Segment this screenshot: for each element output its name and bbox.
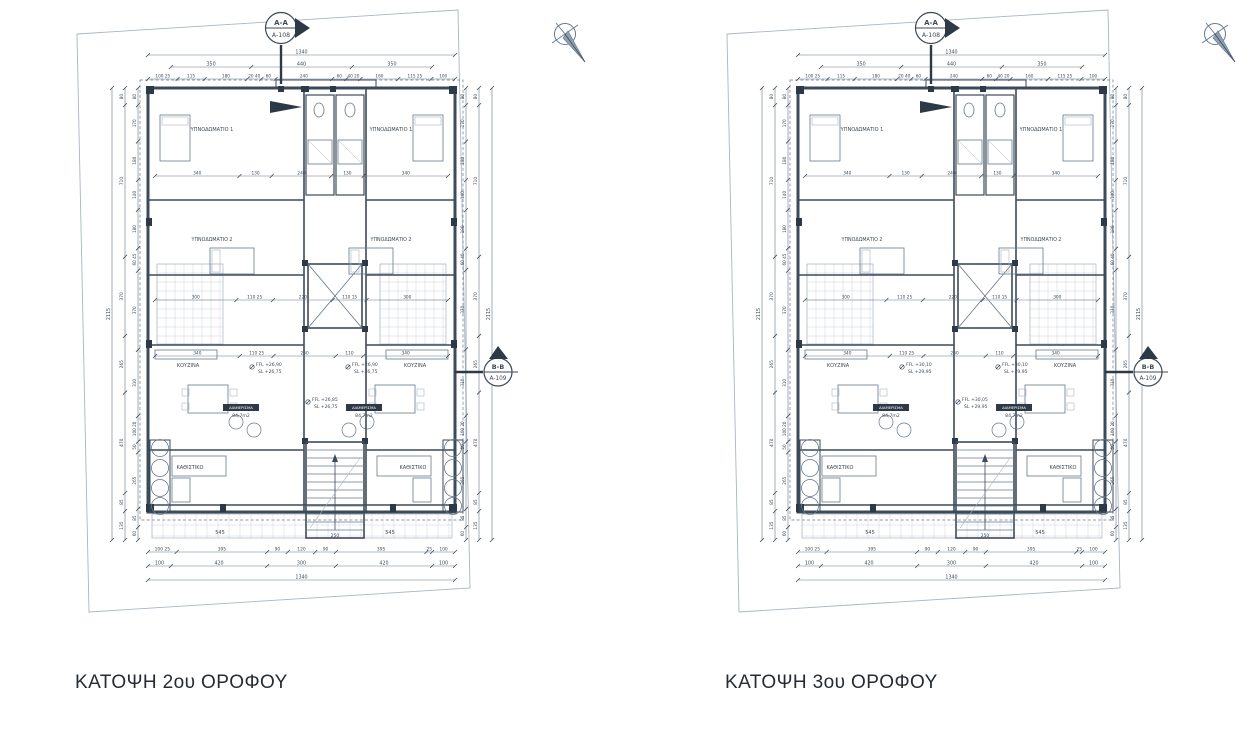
svg-text:265: 265 [460,476,465,484]
svg-text:ΚΟΥΖΙΝΑ: ΚΟΥΖΙΝΑ [827,363,850,369]
svg-text:60: 60 [987,73,993,78]
svg-text:110 25: 110 25 [249,350,264,356]
svg-text:350: 350 [856,61,865,67]
svg-text:370: 370 [769,292,775,301]
svg-text:2115: 2115 [106,308,112,320]
svg-text:370: 370 [132,306,137,314]
svg-text:80: 80 [1110,94,1115,100]
svg-text:250: 250 [301,350,309,356]
north-arrow-icon [552,23,585,62]
svg-text:135: 135 [769,521,775,530]
svg-text:ΥΠΝΟΔΩΜΑΤΙΟ 1: ΥΠΝΟΔΩΜΑΤΙΟ 1 [840,127,884,133]
svg-text:ΔΙΑΜΕΡΙΣΜΑ: ΔΙΑΜΕΡΙΣΜΑ [879,405,903,410]
svg-text:FFL +30,10: FFL +30,10 [906,362,932,368]
svg-text:84,7m2: 84,7m2 [355,413,373,419]
svg-text:300: 300 [947,560,956,566]
svg-text:FFL +26,90: FFL +26,90 [352,362,378,368]
svg-text:240: 240 [297,170,305,176]
svg-text:SL +29,95: SL +29,95 [908,369,932,375]
svg-text:100 20: 100 20 [132,421,137,436]
svg-text:470: 470 [1123,438,1129,447]
apartment-tags: ΔΙΑΜΕΡΙΣΜΑ84,7m2ΔΙΑΜΕΡΙΣΜΑ84,7m2 [223,404,382,419]
svg-text:370: 370 [119,292,125,301]
svg-text:350: 350 [1037,61,1046,67]
svg-text:340: 340 [193,350,201,356]
svg-text:85: 85 [132,515,137,521]
svg-text:FFL +30,05: FFL +30,05 [962,397,988,403]
svg-text:100: 100 [805,560,814,566]
svg-text:A-A: A-A [924,19,938,27]
svg-text:420: 420 [864,560,873,566]
balcony-grid-hatch [802,514,1102,538]
svg-text:100 25: 100 25 [155,73,170,78]
svg-text:FFL +30,10: FFL +30,10 [1002,362,1028,368]
svg-text:90: 90 [323,546,329,552]
svg-text:170: 170 [1110,119,1115,127]
svg-text:110 15: 110 15 [342,294,357,300]
svg-text:100 20: 100 20 [460,421,465,436]
svg-text:85: 85 [460,515,465,521]
svg-text:130: 130 [343,170,351,176]
svg-text:710: 710 [119,177,125,186]
svg-text:340: 340 [193,170,201,176]
svg-text:240: 240 [950,73,958,78]
svg-text:140: 140 [132,191,137,199]
svg-text:ΚΟΥΖΙΝΑ: ΚΟΥΖΙΝΑ [1054,363,1077,369]
svg-text:265: 265 [132,476,137,484]
svg-text:ΥΠΝΟΔΩΜΑΤΙΟ 2: ΥΠΝΟΔΩΜΑΤΙΟ 2 [841,237,883,243]
svg-text:300: 300 [842,294,850,300]
svg-text:25: 25 [426,546,432,552]
floor-plan-3rd-floor-drawing: 545545250ΥΠΝΟΔΩΜΑΤΙΟ 1ΥΠΝΟΔΩΜΑΤΙΟ 1ΥΠΝΟΔ… [710,0,1250,650]
svg-text:100 25: 100 25 [805,73,820,78]
svg-text:265: 265 [119,360,125,369]
svg-text:340: 340 [843,170,851,176]
svg-text:340: 340 [402,350,410,356]
svg-text:180: 180 [222,73,230,78]
svg-text:60: 60 [782,531,787,537]
svg-text:60: 60 [266,73,272,78]
svg-text:300: 300 [1053,294,1061,300]
svg-text:140: 140 [782,191,787,199]
svg-text:100 25: 100 25 [805,546,821,552]
dimensions-bottom: 100 253959012090395251001004203004201001… [796,546,1107,582]
svg-text:265: 265 [1110,476,1115,484]
svg-text:80: 80 [119,94,125,100]
svg-text:545: 545 [1035,530,1045,536]
svg-text:80: 80 [473,94,479,100]
dimensions-top: 1340350440350100 2511518020 40602406040 … [796,49,1107,81]
svg-text:370: 370 [782,306,787,314]
svg-text:40 20: 40 20 [347,73,359,78]
svg-text:300: 300 [403,294,411,300]
svg-text:130: 130 [251,170,259,176]
svg-text:180: 180 [132,156,137,164]
svg-text:85: 85 [769,499,775,505]
svg-text:1340: 1340 [945,49,957,55]
section-cut-arrow [270,101,302,113]
svg-text:50: 50 [1110,444,1115,450]
plan-title-3rd-floor: ΚΑΤΟΨΗ 3ου ΟΡΟΦΟΥ [725,672,938,694]
level-annotations: FFL +30,10SL +29,95FFL +30,10SL +29,95FF… [900,362,1028,410]
svg-text:170: 170 [132,119,137,127]
svg-text:130: 130 [993,170,1001,176]
svg-text:ΚΟΥΖΙΝΑ: ΚΟΥΖΙΝΑ [177,363,200,369]
svg-text:440: 440 [297,61,306,67]
svg-text:100: 100 [1089,560,1098,566]
svg-text:265: 265 [782,476,787,484]
svg-text:110 25: 110 25 [899,350,914,356]
svg-text:395: 395 [868,546,877,552]
bathroom-fixtures [308,103,362,164]
svg-text:ΥΠΝΟΔΩΜΑΤΙΟ 1: ΥΠΝΟΔΩΜΑΤΙΟ 1 [369,127,413,133]
balcony-grid-hatch [1030,264,1096,344]
svg-text:180: 180 [1110,225,1115,233]
svg-text:350: 350 [206,61,215,67]
svg-text:340: 340 [402,170,410,176]
floor-plan-2nd-floor: 545545250ΥΠΝΟΔΩΜΑΤΙΟ 1ΥΠΝΟΔΩΜΑΤΙΟ 1ΥΠΝΟΔ… [60,0,620,650]
drawing-sheet: { "colors": { "line_dark": "#3d4a58", "l… [0,0,1250,753]
svg-text:2115: 2115 [486,308,492,320]
svg-text:310: 310 [782,379,787,387]
svg-text:60 45: 60 45 [132,253,137,265]
section-cut-arrow [920,101,952,113]
plan-title-2nd-floor: ΚΑΤΟΨΗ 2ου ΟΡΟΦΟΥ [75,672,288,694]
svg-text:B-B: B-B [492,363,505,371]
svg-text:FFL +26,90: FFL +26,90 [256,362,282,368]
svg-text:340: 340 [1052,350,1060,356]
svg-text:84,7m2: 84,7m2 [1005,413,1023,419]
dimensions-top: 1340350440350100 2511518020 40602406040 … [146,49,457,81]
svg-text:710: 710 [473,177,479,186]
balconies: 545545250 [152,264,452,539]
floor-plan-2nd-floor-drawing: 545545250ΥΠΝΟΔΩΜΑΤΙΟ 1ΥΠΝΟΔΩΜΑΤΙΟ 1ΥΠΝΟΔ… [60,0,620,650]
svg-text:545: 545 [215,530,225,536]
svg-text:420: 420 [1029,560,1038,566]
svg-text:170: 170 [782,119,787,127]
svg-text:110 25: 110 25 [247,294,262,300]
svg-text:SL +29,95: SL +29,95 [964,404,988,410]
svg-text:370: 370 [1110,305,1115,313]
svg-text:160: 160 [375,73,383,78]
svg-text:40 20: 40 20 [997,73,1009,78]
svg-text:ΚΑΘΙΣΤΙΚΟ: ΚΑΘΙΣΤΙΚΟ [176,465,203,471]
svg-text:FFL +26,85: FFL +26,85 [312,397,338,403]
svg-text:2115: 2115 [756,308,762,320]
dimensions-left: 8017018014018060 45370310100 20502658560… [756,86,790,542]
svg-text:100: 100 [439,546,448,552]
svg-text:ΚΟΥΖΙΝΑ: ΚΟΥΖΙΝΑ [404,363,427,369]
svg-text:60 45: 60 45 [782,253,787,265]
svg-text:265: 265 [1123,360,1129,369]
svg-text:90: 90 [925,546,931,552]
svg-text:85: 85 [119,499,125,505]
svg-text:115 25: 115 25 [1058,73,1073,78]
svg-text:60 40: 60 40 [460,253,465,265]
svg-text:310: 310 [460,378,465,386]
svg-text:120: 120 [297,546,306,552]
apartment-tags: ΔΙΑΜΕΡΙΣΜΑ84,7m2ΔΙΑΜΕΡΙΣΜΑ84,7m2 [873,404,1032,419]
svg-text:SL +29,95: SL +29,95 [1004,369,1028,375]
svg-text:A-108: A-108 [272,32,290,39]
svg-text:470: 470 [769,438,775,447]
svg-text:180: 180 [782,156,787,164]
svg-text:135: 135 [119,521,125,530]
level-annotations: FFL +26,90SL +26,75FFL +26,90SL +26,75FF… [250,362,378,410]
svg-text:395: 395 [1027,546,1036,552]
svg-text:110: 110 [345,350,353,356]
svg-text:SL +26,75: SL +26,75 [354,369,378,375]
svg-text:50: 50 [782,444,787,450]
svg-text:180: 180 [1110,157,1115,165]
svg-text:240: 240 [300,73,308,78]
svg-text:100: 100 [155,560,164,566]
svg-text:ΚΑΘΙΣΤΙΚΟ: ΚΑΘΙΣΤΙΚΟ [399,465,426,471]
staircase [956,442,1014,538]
svg-text:110: 110 [995,350,1003,356]
svg-text:100: 100 [439,560,448,566]
dimensions-right: 8017018014018060 40370310100 20502658560… [460,86,494,542]
svg-text:140: 140 [1110,191,1115,199]
svg-text:340: 340 [1052,170,1060,176]
svg-text:545: 545 [385,530,395,536]
svg-text:60: 60 [1110,531,1115,537]
svg-text:110 25: 110 25 [897,294,912,300]
svg-text:370: 370 [473,292,479,301]
svg-text:160: 160 [1025,73,1033,78]
svg-text:170: 170 [460,119,465,127]
svg-text:370: 370 [460,305,465,313]
north-arrow-icon [1202,23,1235,62]
svg-text:25: 25 [1076,546,1082,552]
svg-text:84,7m2: 84,7m2 [232,413,250,419]
svg-text:50: 50 [132,444,137,450]
svg-text:220: 220 [299,294,307,300]
svg-text:20 40: 20 40 [898,73,910,78]
svg-text:710: 710 [1123,177,1129,186]
svg-text:20 40: 20 40 [248,73,260,78]
svg-text:100: 100 [1089,73,1097,78]
dimensions-left: 8017018014018060 45370310100 20502658560… [106,86,140,542]
svg-text:1340: 1340 [295,49,307,55]
svg-text:115: 115 [837,73,845,78]
svg-text:85: 85 [1110,515,1115,521]
balcony-grid-hatch [380,264,446,344]
svg-text:135: 135 [1123,521,1129,530]
svg-text:80: 80 [132,94,137,100]
dimensions-right: 8017018014018060 40370310100 20502658560… [1110,86,1144,542]
bathroom-fixtures [958,103,1012,164]
svg-text:60: 60 [916,73,922,78]
svg-text:140: 140 [460,191,465,199]
svg-text:395: 395 [377,546,386,552]
svg-text:ΥΠΝΟΔΩΜΑΤΙΟ 1: ΥΠΝΟΔΩΜΑΤΙΟ 1 [1019,127,1063,133]
svg-text:115: 115 [187,73,195,78]
svg-text:SL +26,75: SL +26,75 [314,404,338,410]
svg-text:135: 135 [473,521,479,530]
svg-text:60: 60 [337,73,343,78]
dimensions-bottom: 100 253959012090395251001004203004201001… [146,546,457,582]
svg-text:60 40: 60 40 [1110,253,1115,265]
balcony-grid-hatch [157,264,223,344]
svg-text:710: 710 [769,177,775,186]
balcony-grid-hatch [807,264,873,344]
svg-text:90: 90 [973,546,979,552]
svg-text:265: 265 [769,360,775,369]
balcony-grid-hatch [152,514,452,538]
svg-text:84,7m2: 84,7m2 [882,413,900,419]
svg-text:180: 180 [132,225,137,233]
svg-text:ΚΑΘΙΣΤΙΚΟ: ΚΑΘΙΣΤΙΚΟ [826,465,853,471]
svg-text:ΥΠΝΟΔΩΜΑΤΙΟ 2: ΥΠΝΟΔΩΜΑΤΙΟ 2 [191,237,233,243]
svg-text:350: 350 [387,61,396,67]
svg-text:300: 300 [192,294,200,300]
svg-text:A-108: A-108 [922,32,940,39]
svg-text:115 25: 115 25 [408,73,423,78]
svg-text:ΥΠΝΟΔΩΜΑΤΙΟ 2: ΥΠΝΟΔΩΜΑΤΙΟ 2 [370,237,412,243]
svg-text:250: 250 [951,350,959,356]
svg-text:395: 395 [218,546,227,552]
svg-text:2115: 2115 [1136,308,1142,320]
svg-text:100 20: 100 20 [782,421,787,436]
svg-text:60: 60 [460,531,465,537]
svg-text:180: 180 [872,73,880,78]
svg-text:440: 440 [947,61,956,67]
svg-text:300: 300 [297,560,306,566]
svg-text:85: 85 [782,515,787,521]
svg-text:80: 80 [460,94,465,100]
svg-text:310: 310 [1110,378,1115,386]
svg-text:B-B: B-B [1142,363,1155,371]
svg-text:310: 310 [132,379,137,387]
svg-text:ΔΙΑΜΕΡΙΣΜΑ: ΔΙΑΜΕΡΙΣΜΑ [1002,405,1026,410]
svg-text:340: 340 [843,350,851,356]
balconies: 545545250 [802,264,1102,539]
svg-text:80: 80 [769,94,775,100]
svg-text:470: 470 [119,438,125,447]
svg-text:ΚΑΘΙΣΤΙΚΟ: ΚΑΘΙΣΤΙΚΟ [1049,465,1076,471]
svg-text:420: 420 [214,560,223,566]
svg-text:ΔΙΑΜΕΡΙΣΜΑ: ΔΙΑΜΕΡΙΣΜΑ [352,405,376,410]
svg-text:100 25: 100 25 [155,546,171,552]
svg-text:100: 100 [439,73,447,78]
svg-text:90: 90 [275,546,281,552]
svg-text:130: 130 [901,170,909,176]
svg-text:180: 180 [460,225,465,233]
svg-text:120: 120 [947,546,956,552]
svg-text:A-109: A-109 [490,376,507,382]
svg-text:110 15: 110 15 [992,294,1007,300]
svg-text:240: 240 [947,170,955,176]
svg-text:ΥΠΝΟΔΩΜΑΤΙΟ 1: ΥΠΝΟΔΩΜΑΤΙΟ 1 [190,127,234,133]
svg-text:180: 180 [460,157,465,165]
svg-text:180: 180 [782,225,787,233]
svg-text:60: 60 [132,531,137,537]
svg-text:370: 370 [1123,292,1129,301]
svg-text:265: 265 [473,360,479,369]
svg-text:85: 85 [1123,499,1129,505]
svg-text:220: 220 [949,294,957,300]
svg-text:470: 470 [473,438,479,447]
svg-text:80: 80 [1123,94,1129,100]
floor-plan-3rd-floor: 545545250ΥΠΝΟΔΩΜΑΤΙΟ 1ΥΠΝΟΔΩΜΑΤΙΟ 1ΥΠΝΟΔ… [710,0,1250,650]
svg-text:A-A: A-A [274,19,288,27]
svg-text:545: 545 [865,530,875,536]
staircase [306,442,364,538]
svg-text:80: 80 [782,94,787,100]
svg-text:1340: 1340 [945,574,957,580]
svg-text:ΥΠΝΟΔΩΜΑΤΙΟ 2: ΥΠΝΟΔΩΜΑΤΙΟ 2 [1020,237,1062,243]
svg-text:100 20: 100 20 [1110,421,1115,436]
svg-text:85: 85 [473,499,479,505]
svg-text:A-109: A-109 [1140,376,1157,382]
svg-text:1340: 1340 [295,574,307,580]
svg-text:SL +26,75: SL +26,75 [258,369,282,375]
svg-text:420: 420 [379,560,388,566]
svg-text:100: 100 [1089,546,1098,552]
svg-text:50: 50 [460,444,465,450]
svg-text:ΔΙΑΜΕΡΙΣΜΑ: ΔΙΑΜΕΡΙΣΜΑ [229,405,253,410]
